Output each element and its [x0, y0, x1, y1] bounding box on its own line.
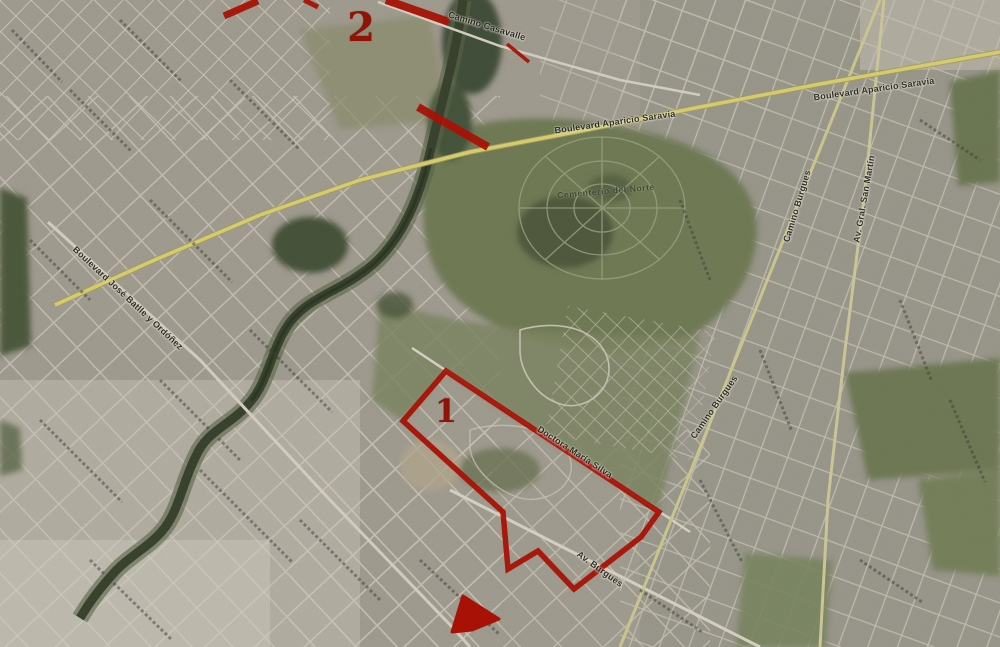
red-line-annotation: [224, 1, 258, 16]
annotations-layer: [0, 0, 1000, 647]
arrow-marker: [452, 596, 499, 632]
red-line-annotation: [386, 0, 449, 22]
parcel-outline-annotation: [403, 371, 659, 589]
red-line-annotation: [507, 44, 529, 62]
red-line-annotation: [304, 0, 318, 7]
red-line-annotation: [418, 107, 488, 147]
map-viewport[interactable]: Camino CasavalleBoulevard Aparicio Sarav…: [0, 0, 1000, 647]
